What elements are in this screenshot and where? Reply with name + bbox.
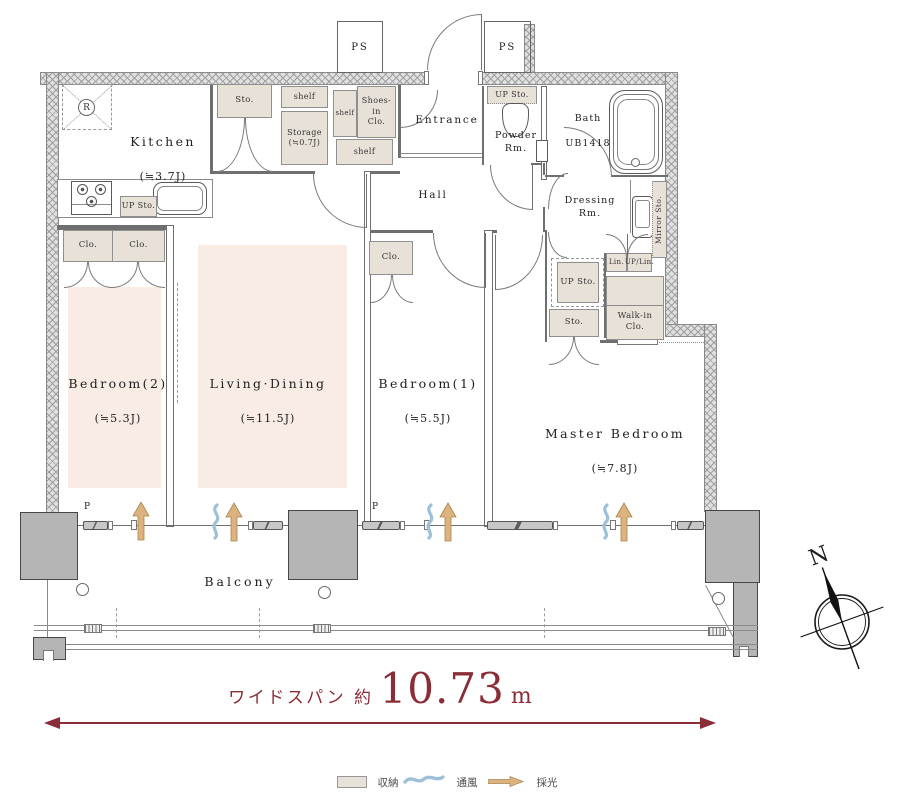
window-sash xyxy=(487,521,553,530)
bedroom2-name: Bedroom(2) xyxy=(58,375,178,393)
sto-door-arc xyxy=(574,337,599,365)
balcony-joint xyxy=(116,608,117,638)
kitchen-size: (≒3.7J) xyxy=(105,169,221,185)
legend-daylight-icon xyxy=(488,776,524,787)
bathtub-inner2 xyxy=(617,99,655,165)
wall-walkin-bottom xyxy=(600,340,618,343)
daylight-arrow-icon xyxy=(132,502,150,542)
p-label: P xyxy=(368,502,382,512)
upsto-label: UP Sto. xyxy=(495,90,528,100)
hall-label: Hall xyxy=(411,189,455,201)
bedroom2-label: Bedroom(2) (≒5.3J) xyxy=(58,357,178,445)
balcony-rail-line xyxy=(34,630,758,631)
master-size: (≒7.8J) xyxy=(533,461,697,477)
balcony-drain xyxy=(76,583,89,596)
rail-grille xyxy=(313,624,331,633)
rail-grille xyxy=(708,627,726,636)
legend-vent-label: 通風 xyxy=(450,775,484,790)
balcony-drain xyxy=(318,586,331,599)
window-sash xyxy=(253,521,283,530)
living-door-arc xyxy=(313,174,367,228)
dressing-alcove-line xyxy=(630,180,631,233)
bedroom1-size: (≒5.5J) xyxy=(366,411,490,427)
washer-space-inner xyxy=(635,200,650,228)
mirror-sto-label: Mirror Sto. xyxy=(655,195,665,243)
upsto-label: UP Sto. xyxy=(560,277,595,288)
living-door-leaf xyxy=(366,174,367,228)
lin-door-arc xyxy=(627,234,648,258)
closet-door-arc xyxy=(138,262,165,288)
lin-door-arc xyxy=(606,234,627,258)
vent-daylight-icon xyxy=(598,502,634,542)
shoes-in-label: Shoes-in Clo. xyxy=(358,96,395,127)
sash-cap xyxy=(248,521,253,530)
dressing-upsto-box: UP Sto. xyxy=(557,262,599,303)
wall-dressing-left-b xyxy=(543,207,545,232)
vent-daylight-icon xyxy=(208,502,244,542)
pipe-space-2: PS xyxy=(484,21,531,73)
storage-label: Storage(≒0.7J) xyxy=(287,128,322,149)
closet-door-arc xyxy=(392,275,413,303)
powder-door-arc xyxy=(490,165,533,210)
master-name: Master Bedroom xyxy=(533,425,697,443)
shoes-door-leaf xyxy=(399,90,400,128)
wall-bath-bottom-b xyxy=(612,175,668,177)
anchor-notch xyxy=(43,650,54,661)
sto-door-arc xyxy=(217,118,245,172)
closet-door-arc xyxy=(88,262,112,288)
bath-drain xyxy=(631,158,640,167)
dimension-arrowhead-left xyxy=(44,717,60,729)
balcony-joint xyxy=(544,608,545,638)
storage-room-box: Storage(≒0.7J) xyxy=(281,111,328,165)
wall-living-top-a xyxy=(210,171,315,174)
shelf-label: shelf xyxy=(354,147,376,157)
lin-door-leaf xyxy=(627,234,628,258)
powder-upsto-box: UP Sto. xyxy=(487,86,537,104)
sash-cap xyxy=(400,521,405,530)
dressing-sto-box: Sto. xyxy=(549,309,599,337)
wall-top-right xyxy=(480,72,678,85)
pipe-space-1: PS xyxy=(337,21,383,73)
up-lin-label: UP/Lin. xyxy=(625,258,654,267)
balcony-rail-line xyxy=(34,649,758,650)
closet-box: Clo. xyxy=(369,241,413,275)
kitchen-name: Kitchen xyxy=(105,133,221,151)
dimension-text: ワイドスパン 約 10.73 m xyxy=(120,664,640,713)
closet-box: Clo. xyxy=(112,230,165,262)
clo-label: Clo. xyxy=(129,240,148,251)
pillar-left xyxy=(20,512,78,580)
shelf-box: shelf xyxy=(333,90,357,137)
bedroom2-size: (≒5.3J) xyxy=(58,411,178,427)
kitchen-label: Kitchen (≒3.7J) xyxy=(105,115,221,203)
powder-label: Powder Rm. xyxy=(488,130,544,156)
pillar-notch xyxy=(739,646,749,657)
master-label: Master Bedroom (≒7.8J) xyxy=(533,407,697,495)
legend-storage-label: 収納 xyxy=(371,775,405,790)
wall-dressing-left-c xyxy=(545,230,547,342)
ps-label: PS xyxy=(499,42,517,53)
sto-door-arc xyxy=(245,118,273,172)
wall-living-top-b xyxy=(367,171,400,174)
shelf-label: shelf xyxy=(294,92,316,102)
sto-label: Sto. xyxy=(235,95,254,106)
balcony-rail-line xyxy=(34,644,758,645)
dimension-arrowhead-right xyxy=(700,717,716,729)
walkin-label: Walk-in Clo. xyxy=(618,311,653,333)
bedroom1-name: Bedroom(1) xyxy=(366,375,490,393)
shoes-in-closet-box: Shoes-in Clo. xyxy=(357,86,396,138)
bath-model: UB1418 xyxy=(560,138,616,151)
storage-size: (≒0.7J) xyxy=(289,138,321,147)
lin-label: Lin. xyxy=(609,258,624,267)
bedroom1-door-leaf xyxy=(485,233,486,288)
closet-door-arc xyxy=(371,275,392,303)
storage-name: Storage xyxy=(287,128,322,137)
sash-cap xyxy=(108,521,113,530)
legend-daylight-label: 採光 xyxy=(530,775,564,790)
bedroom1-label: Bedroom(1) (≒5.5J) xyxy=(366,357,490,445)
balcony-joint xyxy=(259,608,260,638)
bath-name: Bath xyxy=(560,113,616,126)
entrance-door-arc xyxy=(427,14,482,70)
mirror-sto-box: Mirror Sto. xyxy=(652,181,667,258)
master-dotted-line xyxy=(657,342,704,343)
window-sash xyxy=(677,521,704,530)
balcony-drain xyxy=(712,592,725,605)
ps-label: PS xyxy=(351,42,369,53)
door-jamb xyxy=(478,71,483,85)
window-sash xyxy=(362,521,400,530)
balcony-label: Balcony xyxy=(194,574,286,589)
p-label: P xyxy=(80,502,94,512)
floor-plan: PS PS UP Sto. R Sto. shelf xyxy=(0,0,900,801)
legend-vent-icon xyxy=(403,771,445,789)
closet-box: Clo. xyxy=(63,230,113,262)
wall-right-lower xyxy=(704,324,717,512)
wall-left xyxy=(46,72,59,514)
dimension-unit: m xyxy=(511,684,532,709)
pillar-right xyxy=(705,510,760,583)
entrance-label: Entrance xyxy=(407,114,487,126)
bath-label: Bath UB1418 xyxy=(560,100,616,164)
clo-label: Clo. xyxy=(382,252,401,263)
wall-kitchen-bottom xyxy=(57,225,169,230)
sto-door-arc xyxy=(549,337,574,365)
vent-daylight-icon xyxy=(422,502,458,542)
burner-icon xyxy=(86,196,97,207)
entrance-step-line xyxy=(400,153,483,154)
shelf-box: shelf xyxy=(281,86,328,108)
wall-dressing-left-a xyxy=(543,163,545,175)
living-size: (≒11.5J) xyxy=(206,411,330,427)
entrance-door-leaf xyxy=(481,14,482,70)
door-jamb xyxy=(424,71,429,85)
dimension-label: ワイドスパン 約 xyxy=(228,683,373,708)
wall-hall-bottom-a xyxy=(366,230,433,233)
burner-icon xyxy=(77,184,88,195)
bedroom1-door-arc xyxy=(433,233,486,288)
dressing-inner-door-arc xyxy=(548,232,567,258)
rail-grille xyxy=(84,624,102,633)
walkin-closet-box: Walk-in Clo. xyxy=(606,276,664,340)
walkin-divider xyxy=(607,305,663,306)
pillar-middle xyxy=(288,510,358,580)
shelf-label: shelf xyxy=(335,109,354,118)
sash-cap xyxy=(671,521,676,530)
entrance-step-line xyxy=(400,157,483,158)
master-door-leaf xyxy=(495,235,496,290)
living-name: Living·Dining xyxy=(206,375,330,393)
balcony-rail-line xyxy=(34,625,758,626)
sto-box: Sto. xyxy=(217,84,272,118)
clo-label: Clo. xyxy=(79,240,98,251)
sto-label: Sto. xyxy=(565,317,584,328)
window-sash xyxy=(83,521,108,530)
legend-storage-swatch xyxy=(337,776,367,788)
closet-door-arc xyxy=(64,262,88,288)
dimension-value: 10.73 xyxy=(380,664,505,713)
powder-door-leaf xyxy=(532,165,533,210)
master-door-arc xyxy=(495,235,543,290)
living-label: Living·Dining (≒11.5J) xyxy=(206,357,330,445)
closet-door-arc xyxy=(112,262,138,288)
shelf-box: shelf xyxy=(336,139,393,165)
dimension-arrow-line xyxy=(57,722,703,724)
dressing-label: Dressing Rm. xyxy=(556,195,624,221)
refrigerator-icon: R xyxy=(78,99,95,116)
sash-cap xyxy=(553,521,558,530)
